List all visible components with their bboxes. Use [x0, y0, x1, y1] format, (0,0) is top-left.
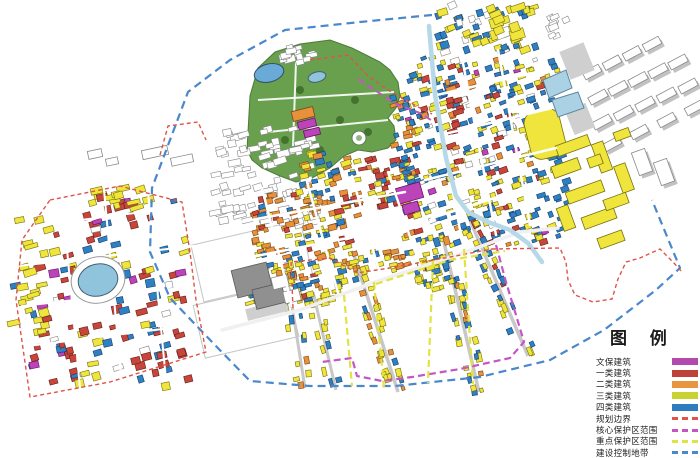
legend-item: 一类建筑	[596, 367, 698, 378]
legend-dash-swatch	[672, 427, 698, 434]
legend-item: 核心保护区范围	[596, 424, 698, 435]
legend-color-swatch	[672, 370, 698, 377]
legend-item-label: 三类建筑	[596, 390, 631, 402]
legend-item: 四类建筑	[596, 402, 698, 413]
legend-title: 图 例	[610, 324, 698, 349]
legend-dash-swatch	[672, 438, 698, 445]
legend-item-label: 重点保护区范围	[596, 435, 658, 447]
legend-item-label: 建设控制地带	[596, 447, 649, 458]
legend-item-label: 文保建筑	[596, 356, 631, 368]
legend-item-label: 规划边界	[596, 413, 631, 425]
boundary-planning-boundary-southeast	[492, 248, 682, 302]
legend-item-label: 四类建筑	[596, 401, 631, 413]
legend-color-swatch	[672, 404, 698, 411]
legend-item: 文保建筑	[596, 356, 698, 367]
legend-item: 规划边界	[596, 413, 698, 424]
legend-color-swatch	[672, 381, 698, 388]
planning-map-page: 图 例 文保建筑一类建筑二类建筑三类建筑四类建筑规划边界核心保护区范围重点保护区…	[0, 0, 700, 458]
legend-item-label: 核心保护区范围	[596, 424, 658, 436]
legend-item: 二类建筑	[596, 379, 698, 390]
legend-item: 重点保护区范围	[596, 436, 698, 447]
legend-color-swatch	[672, 392, 698, 399]
map-canvas	[0, 0, 700, 458]
legend: 图 例 文保建筑一类建筑二类建筑三类建筑四类建筑规划边界核心保护区范围重点保护区…	[596, 324, 698, 458]
legend-item-label: 一类建筑	[596, 367, 631, 379]
legend-item-label: 二类建筑	[596, 378, 631, 390]
legend-item: 建设控制地带	[596, 447, 698, 458]
legend-color-swatch	[672, 358, 698, 365]
boundary-key-protection-1	[344, 295, 352, 386]
legend-items: 文保建筑一类建筑二类建筑三类建筑四类建筑规划边界核心保护区范围重点保护区范围建设…	[596, 356, 698, 458]
legend-item: 三类建筑	[596, 390, 698, 401]
legend-dash-swatch	[672, 415, 698, 422]
legend-dash-swatch	[672, 449, 698, 456]
